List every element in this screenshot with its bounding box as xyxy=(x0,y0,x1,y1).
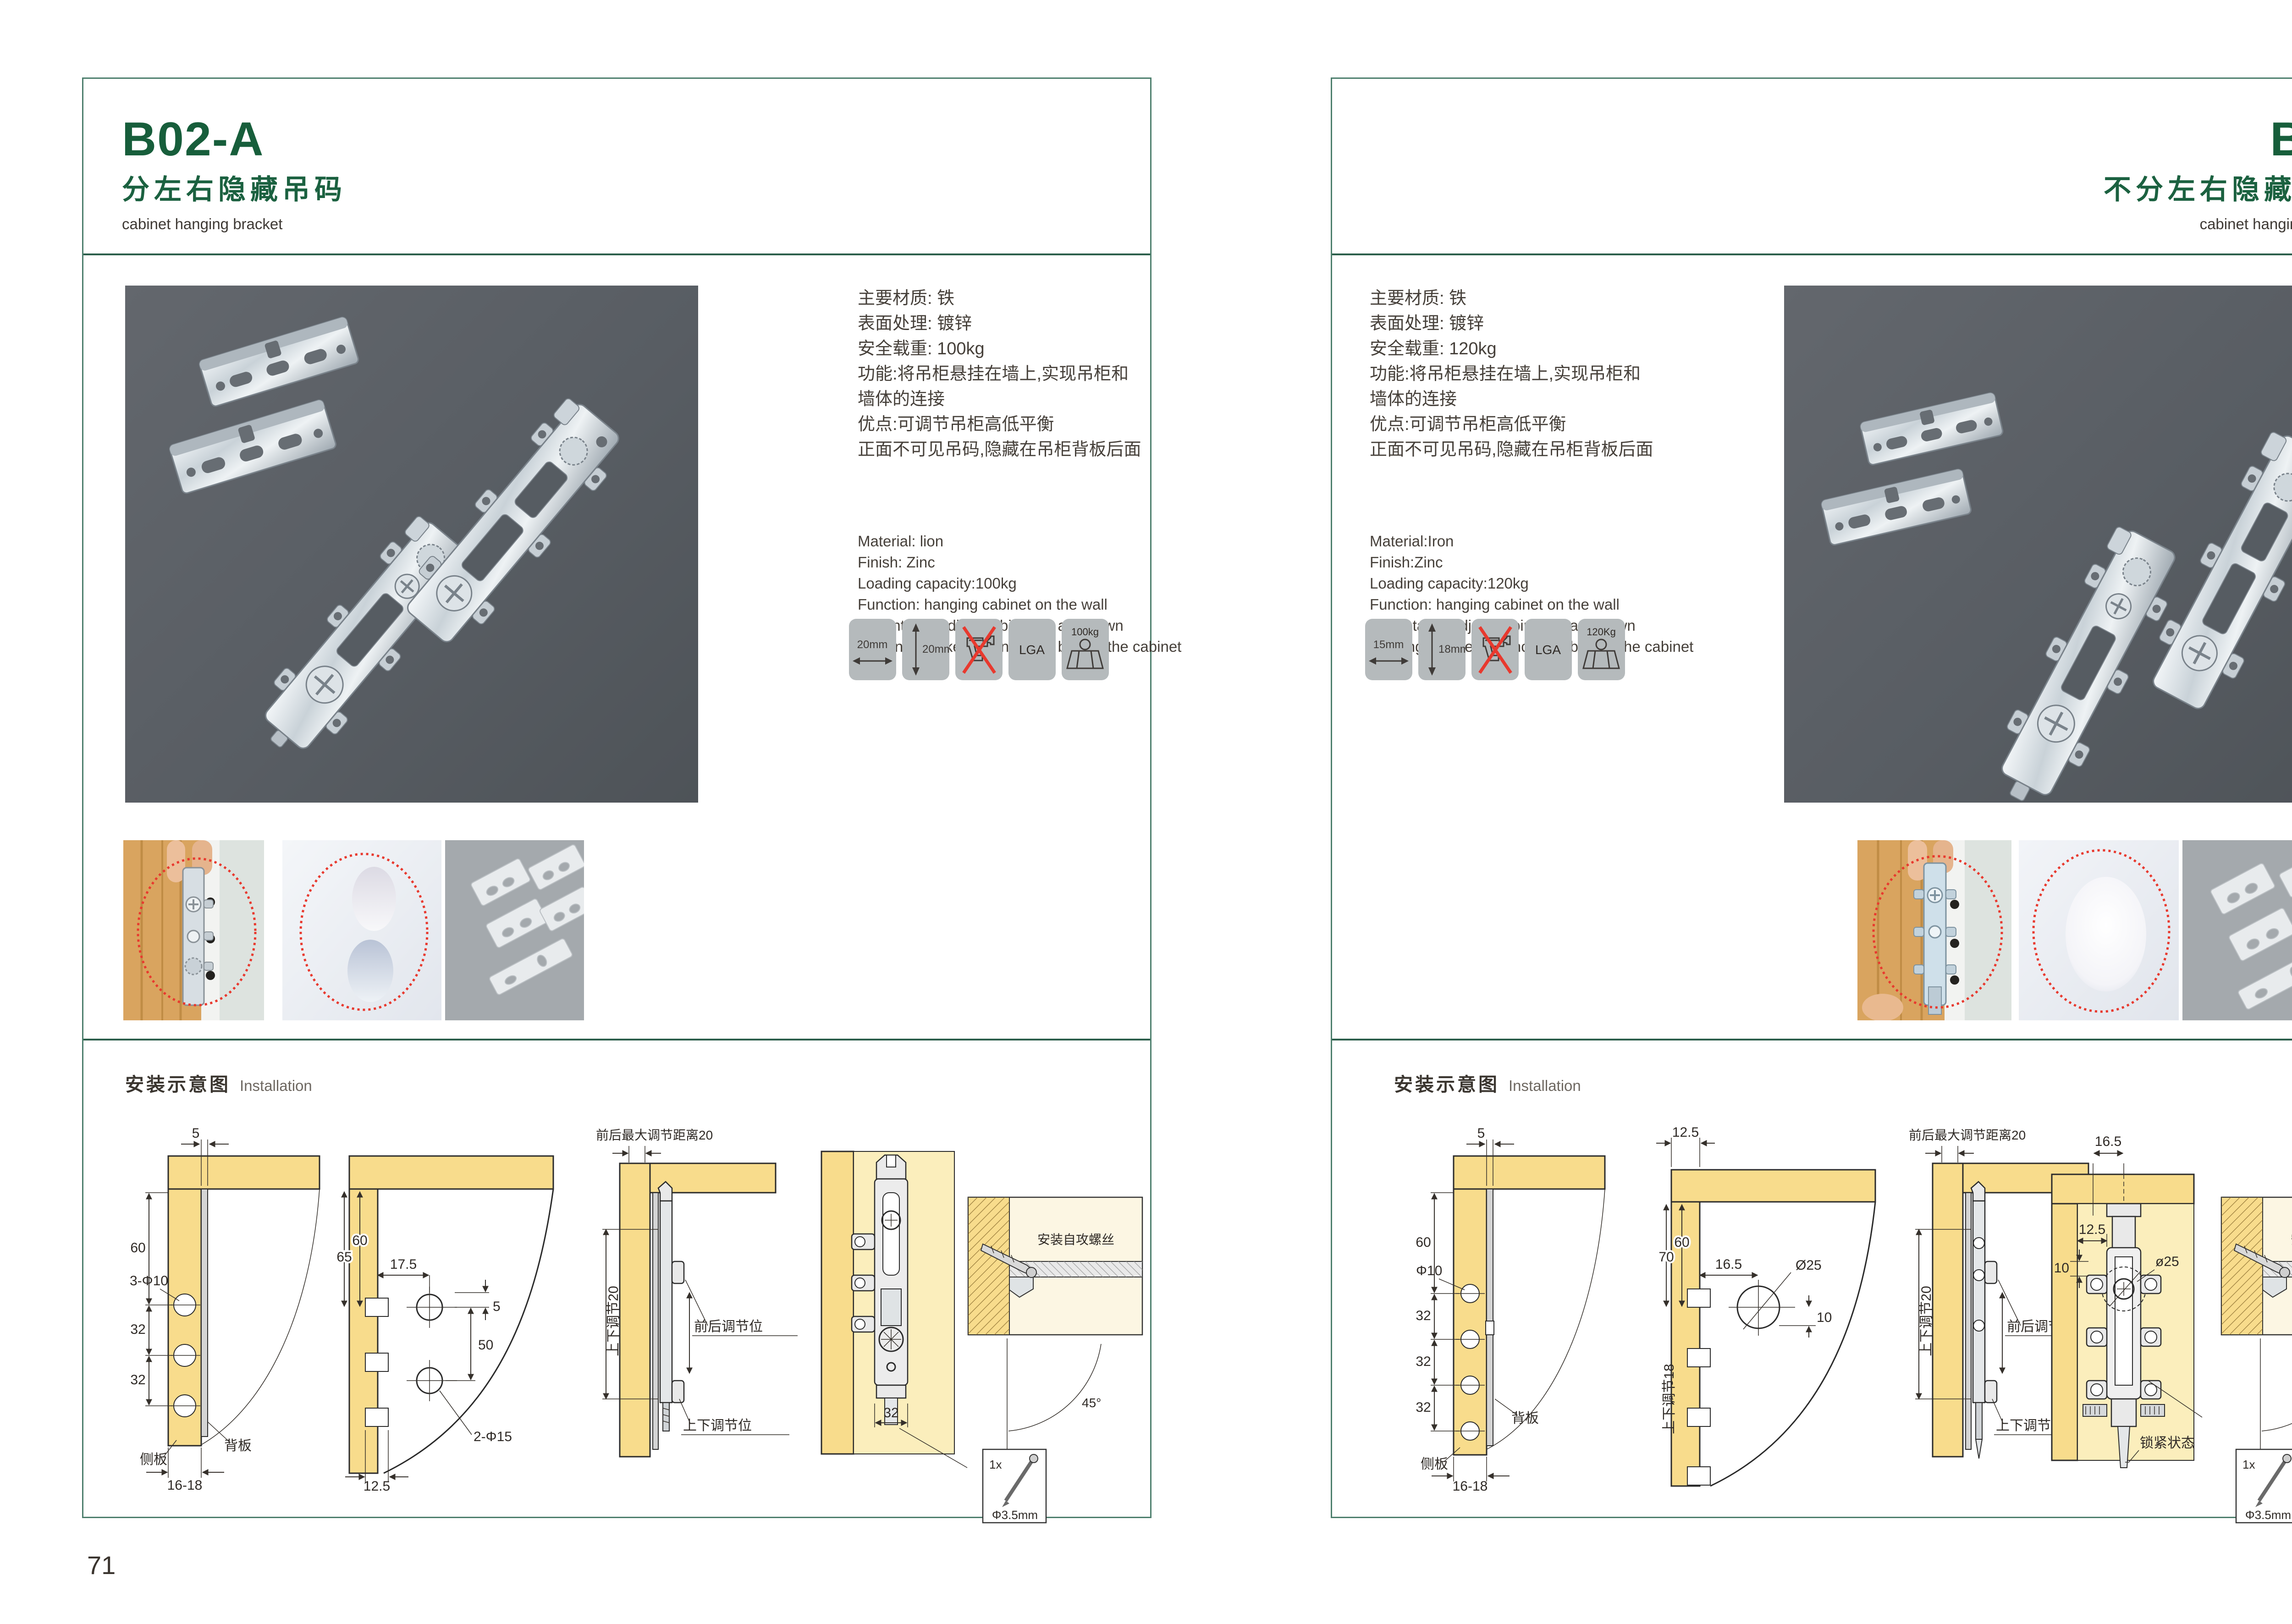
svg-text:18mm: 18mm xyxy=(1438,643,1466,655)
specs-chinese: 主要材质: 铁 表面处理: 镀锌 安全载重: 100kg 功能:将吊柜悬挂在墙上… xyxy=(858,286,1160,462)
header-rule xyxy=(83,253,1150,255)
spec-line: 安全载重: 100kg xyxy=(858,336,1160,362)
install-title-en: Installation xyxy=(240,1077,312,1095)
product-photo-illustration xyxy=(125,286,698,803)
svg-text:32: 32 xyxy=(1416,1400,1431,1415)
svg-text:LGA: LGA xyxy=(1019,643,1045,657)
header-rule xyxy=(1332,253,2292,255)
catalog-spread: { "colors": { "title_green": "#175e3b", … xyxy=(0,0,2292,1624)
diagram-side-panel-drilling: 5 60 3-Φ10 32 32 侧板 背板 16-18 xyxy=(127,1124,324,1491)
svg-text:锁紧状态: 锁紧状态 xyxy=(2140,1436,2195,1451)
svg-text:16.5: 16.5 xyxy=(2095,1134,2121,1149)
svg-text:16-18: 16-18 xyxy=(1453,1479,1488,1494)
svg-text:5: 5 xyxy=(192,1126,200,1141)
svg-text:背板: 背板 xyxy=(1511,1411,1539,1426)
product-name-cn: 分左右隐藏吊码 xyxy=(122,176,347,204)
svg-text:32: 32 xyxy=(1416,1308,1431,1323)
svg-text:17.5: 17.5 xyxy=(390,1257,417,1272)
thumb-concealed-result xyxy=(282,840,441,1020)
install-title-cn: 安装示意图 xyxy=(125,1069,231,1096)
specs-chinese: 主要材质: 铁 表面处理: 镀锌 安全载重: 120kg 功能:将吊柜悬挂在墙上… xyxy=(1370,286,1672,462)
spec-line: Material: lion xyxy=(858,531,1169,552)
svg-text:LGA: LGA xyxy=(1535,643,1561,657)
feature-icons: 20mm 20mm xyxy=(849,619,1109,680)
lga-certification-icon: LGA xyxy=(1525,619,1572,680)
diagram-screw-detail: 安装自攻螺丝 45° 1x Φ3.5mm xyxy=(2217,1193,2292,1527)
svg-text:Φ10: Φ10 xyxy=(1416,1263,1442,1278)
lga-certification-icon: LGA xyxy=(1008,619,1056,680)
install-section-heading: 安装示意图 Installation xyxy=(125,1069,312,1096)
install-section-rule xyxy=(1332,1039,2292,1040)
catalog-page-b03: B03 不分左右隐藏吊码 cabinet hanging bracket xyxy=(1331,77,2292,1518)
diagram-screw-detail: 安装自攻螺丝 45° 1x Φ3.5mm xyxy=(964,1193,1147,1527)
spec-line: 功能:将吊柜悬挂在墙上,实现吊柜和 xyxy=(1370,362,1672,387)
svg-text:60: 60 xyxy=(1674,1235,1689,1250)
spec-line: Function: hanging cabinet on the wall xyxy=(1370,594,1681,615)
no-drill-icon xyxy=(955,619,1003,680)
spec-line: 功能:将吊柜悬挂在墙上,实现吊柜和 xyxy=(858,362,1160,387)
svg-text:32: 32 xyxy=(130,1322,145,1337)
svg-text:上下调节18: 上下调节18 xyxy=(1662,1364,1677,1434)
spec-line: Function: hanging cabinet on the wall xyxy=(858,594,1169,615)
page-number-left: 71 xyxy=(87,1550,116,1580)
main-product-photo xyxy=(1784,286,2292,803)
svg-text:10: 10 xyxy=(1817,1310,1832,1325)
install-section-heading: 安装示意图 Installation xyxy=(1394,1069,1581,1096)
spec-line: 正面不可见吊码,隐藏在吊柜背板后面 xyxy=(858,437,1160,462)
product-name-en: cabinet hanging bracket xyxy=(2200,216,2292,231)
product-photo-illustration xyxy=(1784,286,2292,803)
svg-text:前后调节位: 前后调节位 xyxy=(694,1319,763,1334)
svg-text:1x: 1x xyxy=(989,1458,1002,1471)
svg-text:120Kg: 120Kg xyxy=(1587,626,1616,638)
svg-text:20mm: 20mm xyxy=(922,643,949,655)
install-title-cn: 安装示意图 xyxy=(1394,1069,1499,1096)
svg-text:16.5: 16.5 xyxy=(1715,1257,1742,1272)
svg-text:侧板: 侧板 xyxy=(1421,1457,1448,1472)
bracket-assembly-1 xyxy=(1979,522,2190,803)
width-dimension-icon: 15mm xyxy=(1365,619,1412,680)
svg-text:50: 50 xyxy=(478,1338,493,1353)
spec-line: 主要材质: 铁 xyxy=(1370,286,1672,311)
wall-rail-1 xyxy=(198,316,359,407)
svg-text:20mm: 20mm xyxy=(857,639,888,651)
diagram-adjustment-side-view: 前后最大调节距离20 上下调节20 前后调节位 上下调节位 xyxy=(592,1124,803,1491)
svg-text:45°: 45° xyxy=(1082,1396,1101,1410)
spec-line: 优点:可调节吊柜高低平衡 xyxy=(1370,412,1672,437)
product-name-cn: 不分左右隐藏吊码 xyxy=(2104,176,2292,204)
load-capacity-icon: 100kg xyxy=(1062,619,1109,680)
svg-text:前后最大调节距离20: 前后最大调节距离20 xyxy=(596,1128,713,1142)
width-dimension-icon: 20mm xyxy=(849,619,896,680)
thumb-parts-set xyxy=(2182,840,2292,1020)
spec-line: 墙体的连接 xyxy=(1370,387,1672,412)
svg-text:安装自攻螺丝: 安装自攻螺丝 xyxy=(1037,1233,1114,1247)
svg-text:Φ3.5mm: Φ3.5mm xyxy=(2245,1508,2291,1522)
svg-text:1x: 1x xyxy=(2242,1458,2255,1471)
diagram-hole-positions: 12.5 Ø25 16.5 70 60 10 上下调节18 xyxy=(1660,1124,1889,1491)
thumb-parts-set xyxy=(445,840,584,1020)
spec-line: 表面处理: 镀锌 xyxy=(1370,311,1672,336)
svg-text:上下调节位: 上下调节位 xyxy=(683,1418,752,1433)
spec-line: Finish:Zinc xyxy=(1370,552,1681,573)
load-capacity-icon: 120Kg xyxy=(1578,619,1625,680)
thumb-concealed-result xyxy=(2019,840,2179,1020)
diagram-bracket-front-view: 16.5 12.5 xyxy=(2043,1124,2203,1491)
spec-line: Loading capacity:100kg xyxy=(858,573,1169,594)
svg-text:15mm: 15mm xyxy=(1373,639,1404,651)
diagram-side-panel-drilling: 5 60 Φ10 32 32 32 背板 侧板 16-18 xyxy=(1412,1124,1609,1491)
svg-text:12.5: 12.5 xyxy=(364,1479,390,1494)
wall-rail-2 xyxy=(1821,468,1972,545)
no-drill-icon xyxy=(1471,619,1519,680)
spec-line: 表面处理: 镀锌 xyxy=(858,311,1160,336)
spec-line: 墙体的连接 xyxy=(858,387,1160,412)
svg-text:上下调节20: 上下调节20 xyxy=(606,1286,621,1356)
height-dimension-icon: 18mm xyxy=(1418,619,1466,680)
svg-text:12.5: 12.5 xyxy=(2079,1222,2105,1237)
diagram-hole-positions: 17.5 65 60 5 50 2-Φ15 12.5 xyxy=(338,1124,567,1491)
height-dimension-icon: 20mm xyxy=(902,619,949,680)
product-code: B03 xyxy=(2270,116,2292,163)
svg-text:60: 60 xyxy=(352,1233,367,1248)
wall-rail-1 xyxy=(1860,392,2004,466)
spec-line: 优点:可调节吊柜高低平衡 xyxy=(858,412,1160,437)
svg-text:侧板: 侧板 xyxy=(140,1452,167,1467)
install-title-en: Installation xyxy=(1509,1077,1581,1095)
diagram-bracket-front-view: 32 xyxy=(808,1124,968,1491)
spec-line: Material:Iron xyxy=(1370,531,1681,552)
svg-text:32: 32 xyxy=(1416,1354,1431,1369)
catalog-page-b02a: B02-A 分左右隐藏吊码 cabinet hanging bracket xyxy=(82,77,1152,1518)
svg-text:60: 60 xyxy=(1416,1235,1431,1250)
spec-line: 安全载重: 120kg xyxy=(1370,336,1672,362)
svg-text:Ø25: Ø25 xyxy=(1796,1258,1822,1273)
product-code: B02-A xyxy=(122,116,264,163)
thumb-installed-bracket xyxy=(123,840,264,1020)
svg-text:2-Φ15: 2-Φ15 xyxy=(474,1429,512,1444)
svg-text:5: 5 xyxy=(493,1299,501,1314)
spec-line: 正面不可见吊码,隐藏在吊柜背板后面 xyxy=(1370,437,1672,462)
product-name-en: cabinet hanging bracket xyxy=(122,216,282,231)
svg-text:32: 32 xyxy=(130,1372,145,1387)
feature-icons: 15mm 18mm xyxy=(1365,619,1625,680)
svg-text:100kg: 100kg xyxy=(1071,626,1099,638)
svg-text:16-18: 16-18 xyxy=(167,1478,203,1493)
svg-text:前后最大调节距离20: 前后最大调节距离20 xyxy=(1909,1128,2026,1142)
svg-text:12.5: 12.5 xyxy=(1672,1125,1699,1140)
thumb-installed-bracket xyxy=(1857,840,2011,1020)
main-product-photo xyxy=(125,286,698,803)
svg-text:60: 60 xyxy=(130,1240,145,1255)
svg-text:32: 32 xyxy=(883,1405,898,1420)
svg-text:5: 5 xyxy=(1477,1126,1485,1141)
svg-text:Φ3.5mm: Φ3.5mm xyxy=(992,1508,1038,1522)
spec-line: Finish: Zinc xyxy=(858,552,1169,573)
spec-line: 主要材质: 铁 xyxy=(858,286,1160,311)
svg-text:70: 70 xyxy=(1658,1250,1674,1265)
svg-text:10: 10 xyxy=(2054,1261,2069,1276)
install-section-rule xyxy=(83,1039,1150,1040)
svg-text:上下调节20: 上下调节20 xyxy=(1919,1286,1934,1356)
spec-line: Loading capacity:120kg xyxy=(1370,573,1681,594)
svg-text:3-Φ10: 3-Φ10 xyxy=(130,1273,168,1288)
svg-text:ø25: ø25 xyxy=(2155,1254,2179,1269)
svg-text:65: 65 xyxy=(336,1250,352,1265)
wall-rail-2 xyxy=(169,399,337,495)
